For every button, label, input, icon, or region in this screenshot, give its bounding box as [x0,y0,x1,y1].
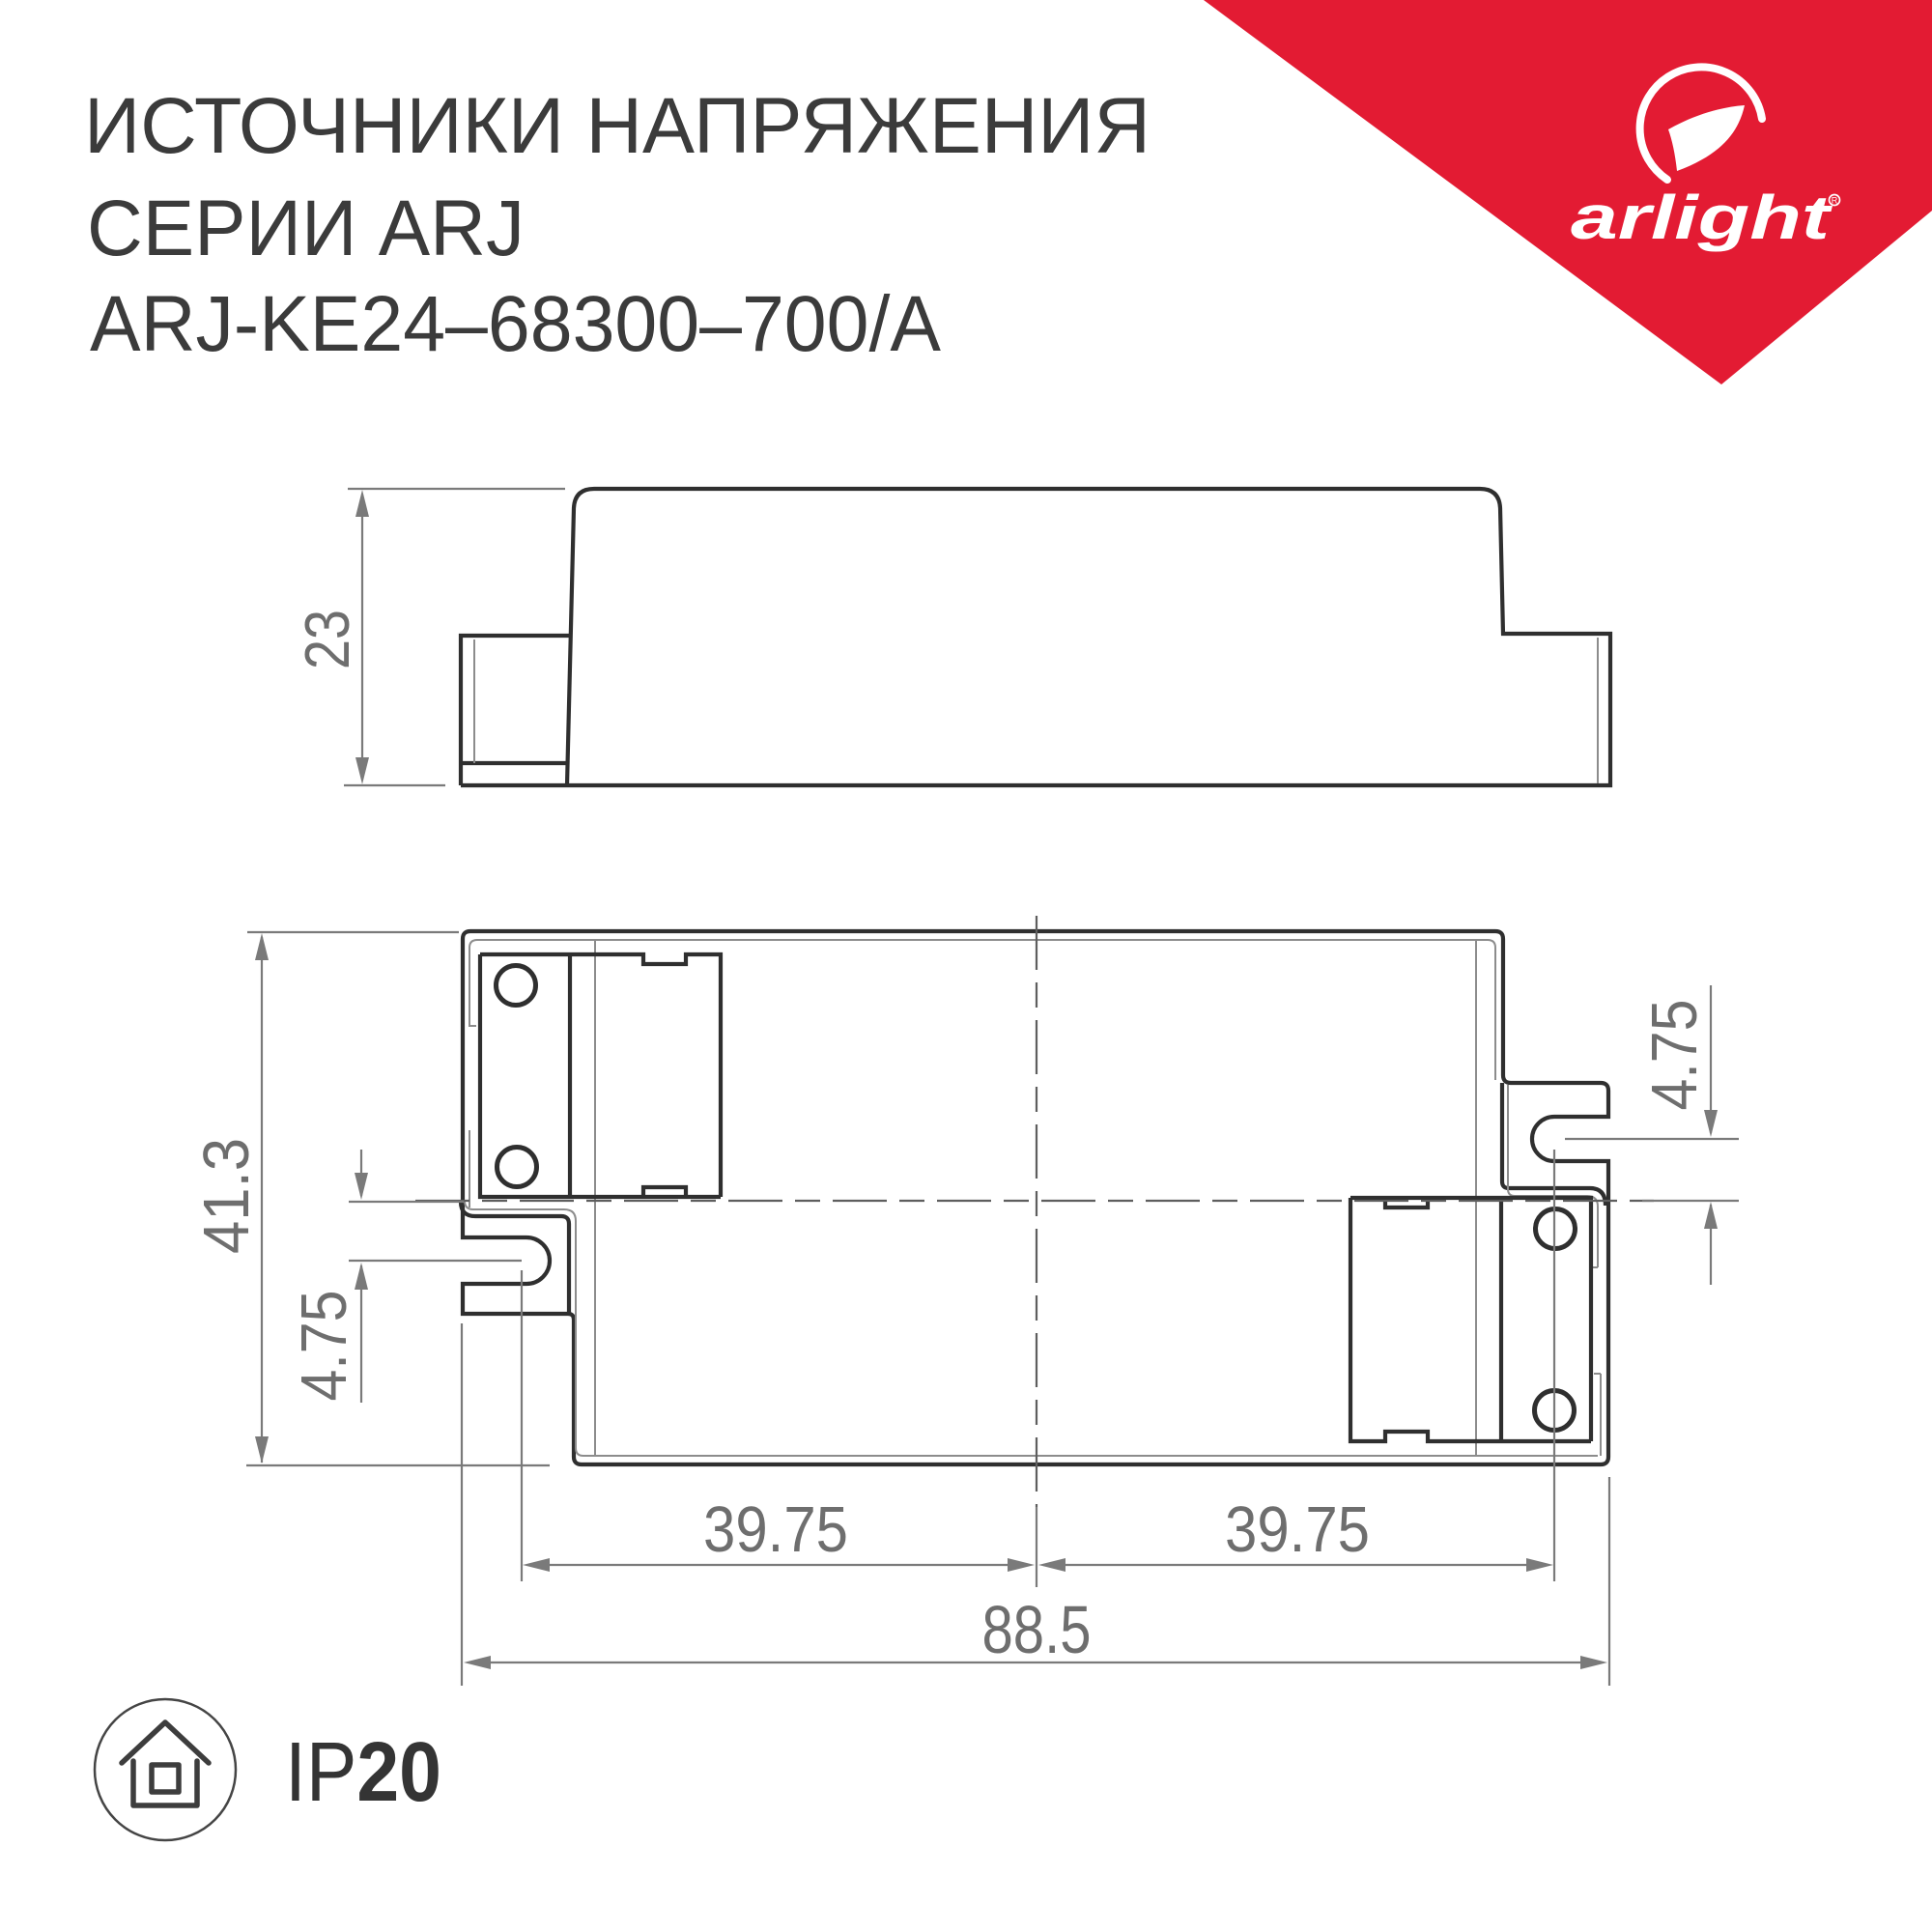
svg-text:39.75: 39.75 [703,1493,848,1566]
svg-text:ИСТОЧНИКИ НАПРЯЖЕНИЯ: ИСТОЧНИКИ НАПРЯЖЕНИЯ [84,82,1151,170]
svg-text:ARJ-KE24–68300–700/A: ARJ-KE24–68300–700/A [90,280,941,368]
svg-text:23: 23 [292,610,362,669]
svg-text:88.5: 88.5 [982,1592,1092,1667]
svg-text:СЕРИИ ARJ: СЕРИИ ARJ [87,185,525,272]
svg-text:R: R [1832,196,1838,206]
svg-text:41.3: 41.3 [190,1138,263,1254]
svg-text:IP20: IP20 [285,1725,441,1819]
svg-text:4.75: 4.75 [1638,1000,1711,1111]
svg-text:arlight: arlight [1571,183,1833,252]
svg-text:4.75: 4.75 [288,1291,360,1402]
svg-text:39.75: 39.75 [1225,1493,1370,1566]
